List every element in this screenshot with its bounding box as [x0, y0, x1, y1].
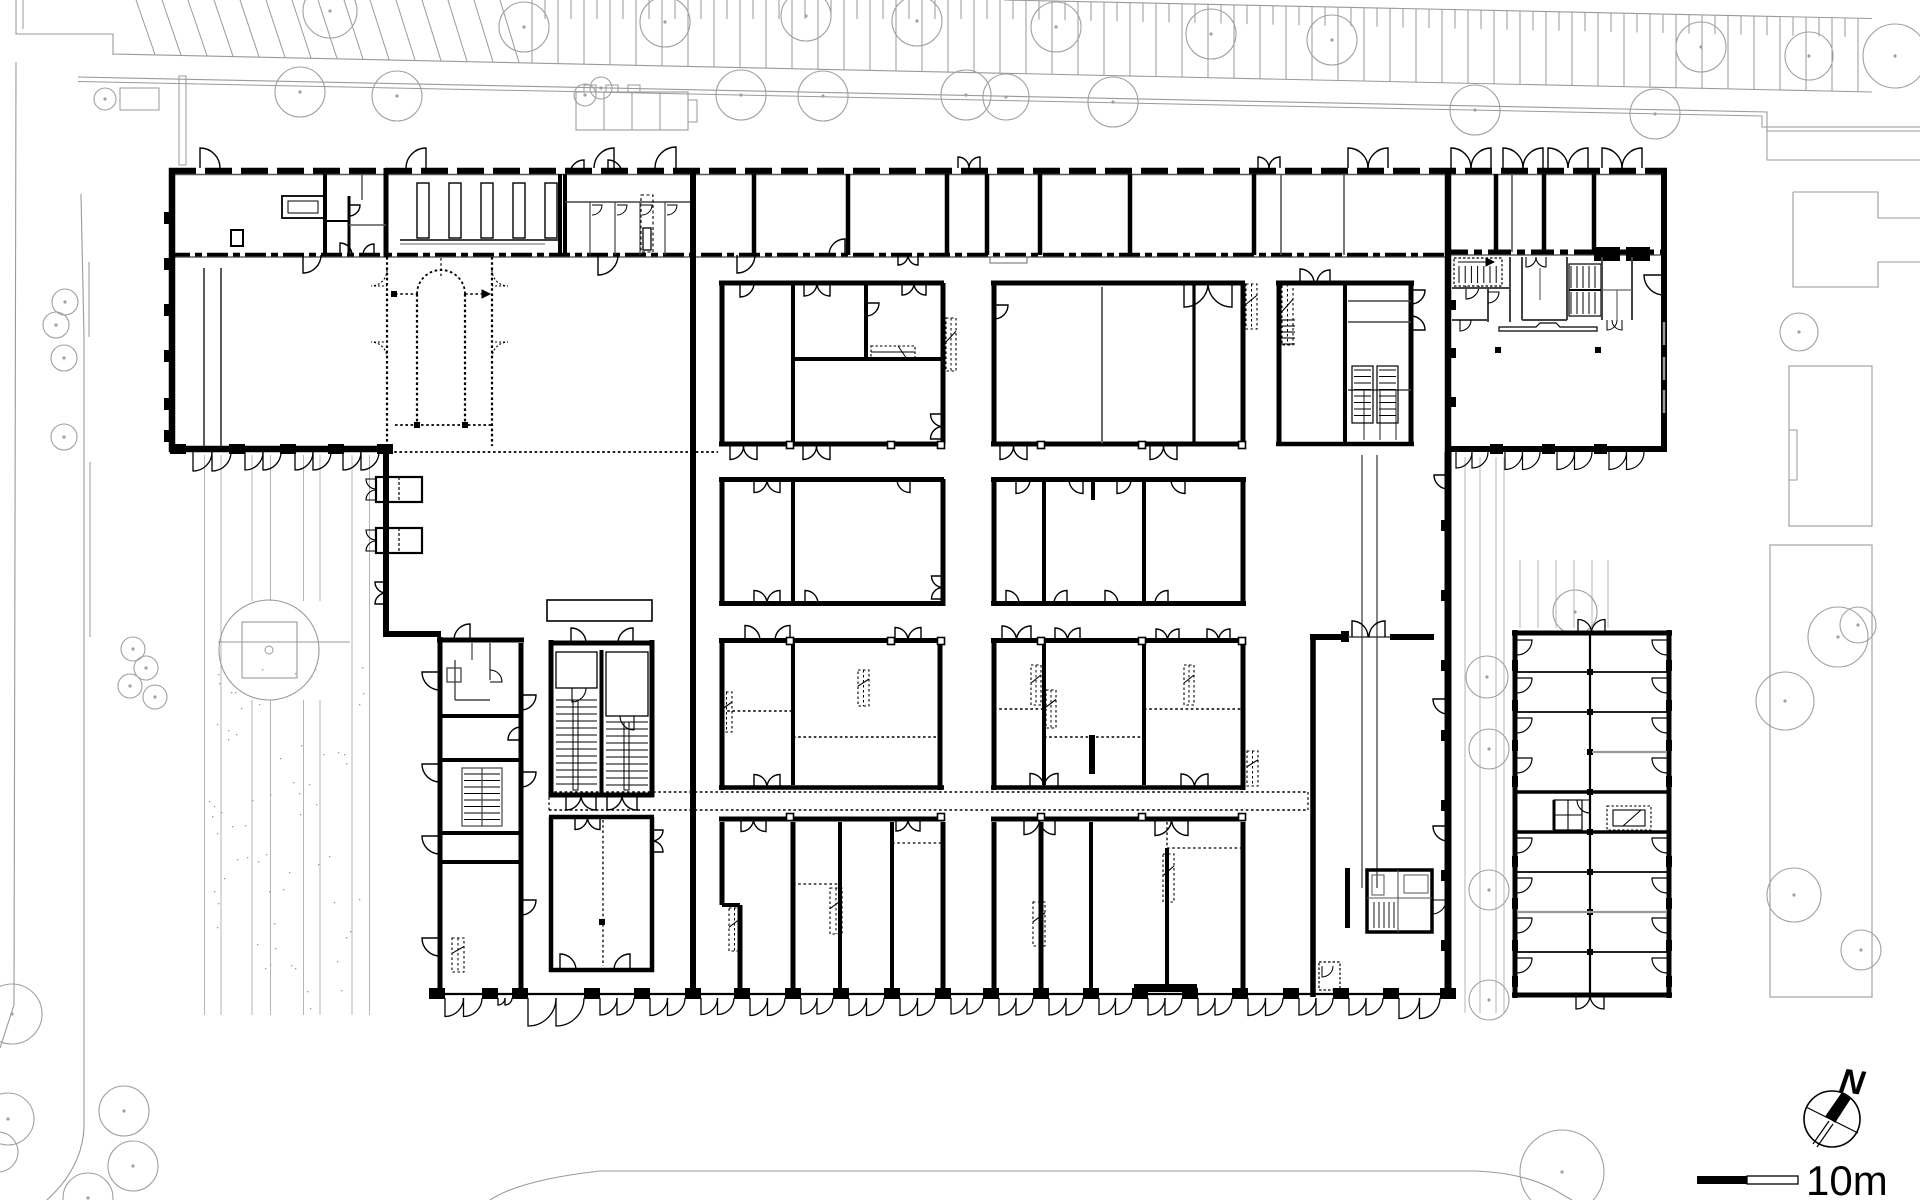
- svg-text:10m: 10m: [1806, 1157, 1888, 1200]
